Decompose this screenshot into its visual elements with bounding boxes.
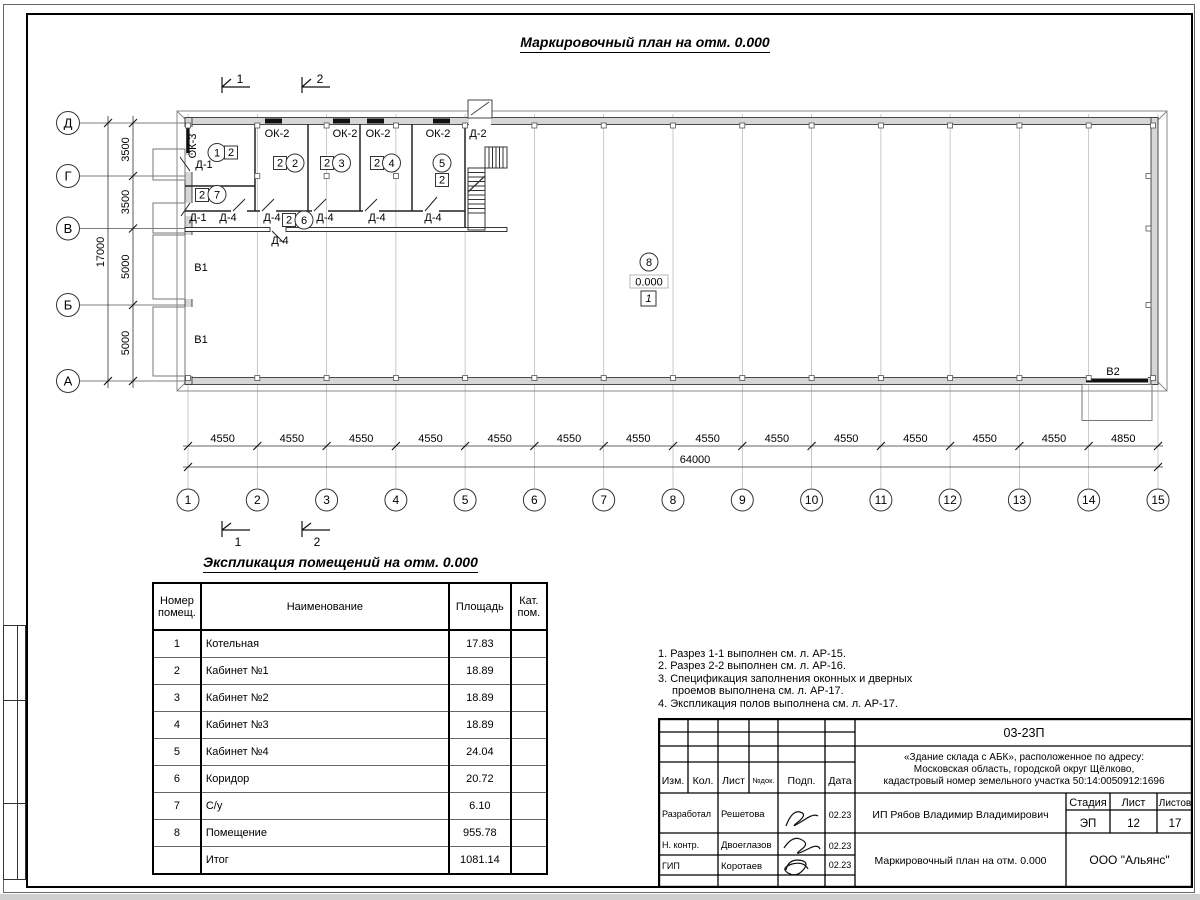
axis-col-5: 5 (462, 493, 469, 507)
room-name: Котельная (201, 630, 449, 658)
note-line: 2. Разрез 2-2 выполнен см. л. АР-16. (658, 660, 1078, 672)
cat-mark-2: 2 (277, 158, 283, 170)
room-category (511, 793, 547, 820)
section-mark-1-top: 1 (237, 72, 244, 86)
room-category (511, 766, 547, 793)
dim-row-4: 5000 (120, 331, 132, 355)
row-axis-bubbles (57, 112, 80, 393)
stamp-sheet-value: 12 (1127, 818, 1140, 830)
floor-type-mark: 1 (645, 293, 651, 305)
stamp-col-podp: Подп. (788, 775, 816, 787)
room-name: Коридор (201, 766, 449, 793)
room-category (511, 820, 547, 847)
axis-col-12: 12 (943, 493, 957, 507)
room-category (511, 658, 547, 685)
stamp-project-line3: кадастровый номер земельного участка 50:… (883, 776, 1164, 787)
room-mark-8: 8 (646, 257, 652, 269)
axis-col-14: 14 (1082, 493, 1096, 507)
section-mark-2-top: 2 (317, 72, 324, 86)
stamp-sheets-value: 17 (1169, 818, 1182, 830)
left-margin-stamp (3, 625, 26, 880)
dim-col-5: 4550 (487, 433, 511, 445)
room-number: 6 (153, 766, 201, 793)
room-mark-7: 7 (214, 190, 220, 202)
porches-and-gates (153, 149, 185, 376)
stamp-client: ИП Рябов Владимир Владимирович (872, 809, 1048, 821)
room-name: Кабинет №1 (201, 658, 449, 685)
note-line: 3. Спецификация заполнения оконных и две… (658, 673, 1078, 685)
dim-row-total: 17000 (95, 237, 107, 268)
axis-col-2: 2 (254, 493, 261, 507)
drawing-sheet: Маркировочный план на отм. 0.000 (0, 0, 1200, 900)
stamp-col-kol: Кол. (693, 775, 714, 787)
room-area: 17.83 (449, 630, 511, 658)
room-name: С/у (201, 793, 449, 820)
stamp-col-list: Лист (722, 775, 745, 787)
col-header-number: Номер помещ. (153, 583, 201, 630)
dim-col-1: 4550 (210, 433, 234, 445)
stamp-role-gip: ГИП (662, 861, 680, 871)
total-label: Итог (201, 847, 449, 875)
porch-1 (153, 149, 185, 180)
label-d4-5: Д-4 (424, 212, 441, 224)
stamp-date-gip: 02.23 (829, 860, 852, 870)
room-mark-4: 4 (388, 158, 394, 170)
label-d2: Д-2 (469, 128, 486, 140)
room-category (511, 630, 547, 658)
screen-edge (0, 894, 1200, 900)
stamp-sheet-label: Лист (1122, 797, 1146, 809)
room-mark-2: 2 (292, 158, 298, 170)
section-marks (222, 77, 330, 537)
cat-mark-7: 2 (199, 190, 205, 202)
room-area: 18.89 (449, 685, 511, 712)
dim-col-3: 4550 (349, 433, 373, 445)
room-mark-1: 1 (214, 148, 220, 160)
dimension-ticks (104, 119, 1162, 471)
dim-row-1: 3500 (120, 137, 132, 161)
notes: 1. Разрез 1-1 выполнен см. л. АР-15. 2. … (658, 648, 1078, 710)
window-ok2-3 (367, 119, 384, 124)
col-header-category: Кат. пом. (511, 583, 547, 630)
label-d4-2: Д-4 (263, 212, 280, 224)
dimension-lines (108, 116, 1163, 467)
room-marker-shapes (196, 144, 669, 307)
room-area: 18.89 (449, 658, 511, 685)
cat-mark-1: 2 (228, 147, 234, 159)
room-number: 2 (153, 658, 201, 685)
dim-col-14: 4850 (1111, 433, 1135, 445)
room-name: Кабинет №4 (201, 739, 449, 766)
vestibule-d2 (468, 100, 492, 118)
stamp-role-ncontrol: Н. контр. (662, 840, 699, 850)
stamp-doc-number: 03-23П (1004, 726, 1045, 740)
stamp-stage-value: ЭП (1080, 818, 1097, 830)
stamp-sheets-label: Листов (1159, 798, 1192, 809)
axis-col-10: 10 (805, 493, 819, 507)
cat-mark-6: 2 (286, 215, 292, 227)
axis-col-6: 6 (531, 493, 538, 507)
label-v1-1: В1 (194, 262, 207, 274)
axis-col-9: 9 (739, 493, 746, 507)
label-d1-top: Д-1 (195, 159, 212, 171)
axis-col-7: 7 (600, 493, 607, 507)
axis-row-b: Б (64, 298, 73, 313)
staircase (468, 147, 507, 230)
dim-col-11: 4550 (903, 433, 927, 445)
dim-col-6: 4550 (557, 433, 581, 445)
col-header-name: Наименование (201, 583, 449, 630)
cat-mark-5: 2 (439, 175, 445, 187)
stamp-role-developer: Разработал (662, 809, 711, 819)
room-name: Кабинет №2 (201, 685, 449, 712)
axis-col-13: 13 (1013, 493, 1027, 507)
stamp-stage-label: Стадия (1069, 797, 1107, 809)
stamp-name-developer: Решетова (721, 809, 765, 820)
stamp-organization: ООО "Альянс" (1089, 853, 1169, 867)
room-area: 955.78 (449, 820, 511, 847)
explication-title: Экспликация помещений на отм. 0.000 (203, 554, 478, 573)
label-d1-corridor: Д-1 (189, 212, 206, 224)
note-line: 1. Разрез 1-1 выполнен см. л. АР-15. (658, 648, 1078, 660)
axis-row-d: Д (64, 116, 73, 131)
axis-row-a: А (64, 374, 73, 389)
label-d4-3: Д-4 (316, 212, 333, 224)
label-ok2-2: ОК-2 (333, 128, 358, 140)
window-ok2-2 (333, 119, 350, 124)
dim-col-4: 4550 (418, 433, 442, 445)
axis-col-3: 3 (323, 493, 330, 507)
room-mark-6: 6 (301, 215, 307, 227)
room-mark-3: 3 (338, 158, 344, 170)
label-v1-2: В1 (194, 334, 207, 346)
axis-row-g: Г (64, 169, 71, 184)
label-ok2-4: ОК-2 (426, 128, 451, 140)
room-category (511, 685, 547, 712)
room-number: 4 (153, 712, 201, 739)
marking-plan-drawing: Д Г В Б А 3500 3500 5000 5000 17000 1 2 … (0, 0, 1200, 560)
section-mark-1-bottom: 1 (235, 535, 242, 549)
label-d4-1: Д-4 (219, 212, 236, 224)
title-block: Изм. Кол. Лист №док. Подп. Дата Разработ… (658, 718, 1193, 888)
room-number: 5 (153, 739, 201, 766)
gate-v1-leaf-2 (153, 307, 185, 376)
dim-col-13: 4550 (1042, 433, 1066, 445)
label-ok3: ОК-3 (187, 134, 199, 159)
room-number: 8 (153, 820, 201, 847)
dim-col-9: 4550 (765, 433, 789, 445)
table-row: 4 Кабинет №3 18.89 (153, 712, 547, 739)
table-row: 6 Коридор 20.72 (153, 766, 547, 793)
gate-v2 (1082, 381, 1152, 421)
axis-col-4: 4 (393, 493, 400, 507)
column-grid-lines (188, 114, 1158, 488)
label-d4-4: Д-4 (368, 212, 385, 224)
dim-col-2: 4550 (280, 433, 304, 445)
signature-scribbles (784, 812, 820, 875)
label-d4-6: Д-4 (271, 235, 288, 247)
total-area: 1081.14 (449, 847, 511, 875)
dim-col-8: 4550 (695, 433, 719, 445)
table-row: 7 С/у 6.10 (153, 793, 547, 820)
section-mark-2-bottom: 2 (314, 535, 321, 549)
axis-col-11: 11 (875, 493, 888, 507)
stamp-col-data: Дата (828, 775, 851, 787)
level-mark: 0.000 (635, 277, 663, 289)
stamp-name-gip: Коротаев (721, 861, 762, 872)
room-number: 3 (153, 685, 201, 712)
dim-col-total: 64000 (680, 454, 711, 466)
cat-mark-3: 2 (324, 158, 330, 170)
stamp-project-line1: «Здание склада с АБК», расположенное по … (904, 752, 1144, 763)
stamp-date-developer: 02.23 (829, 810, 852, 820)
col-header-area: Площадь (449, 583, 511, 630)
room-name: Кабинет №3 (201, 712, 449, 739)
office-south-wall (185, 228, 507, 232)
room-mark-5: 5 (439, 158, 445, 170)
room-category (511, 739, 547, 766)
axis-row-v: В (64, 221, 73, 236)
axis-col-1: 1 (185, 493, 192, 507)
table-row: 1 Котельная 17.83 (153, 630, 547, 658)
stamp-name-ncontrol: Двоеглазов (721, 840, 772, 851)
roof-overhang-outline (177, 111, 1167, 391)
table-row: 5 Кабинет №4 24.04 (153, 739, 547, 766)
dim-col-12: 4550 (972, 433, 996, 445)
explication-table: Номер помещ. Наименование Площадь Кат. п… (152, 582, 548, 875)
label-v2: В2 (1106, 366, 1119, 378)
dim-row-2: 3500 (120, 190, 132, 214)
room-area: 24.04 (449, 739, 511, 766)
window-ok2-1 (265, 119, 282, 124)
stamp-project-line2: Московская область, городской округ Щёлк… (914, 763, 1135, 775)
label-ok2-3: ОК-2 (366, 128, 391, 140)
axis-col-8: 8 (670, 493, 677, 507)
stamp-sheet-name: Маркировочный план на отм. 0.000 (874, 855, 1046, 867)
room-number (153, 847, 201, 875)
table-total-row: Итог 1081.14 (153, 847, 547, 875)
room-category (511, 712, 547, 739)
room-area: 20.72 (449, 766, 511, 793)
room-number: 1 (153, 630, 201, 658)
table-row: 3 Кабинет №2 18.89 (153, 685, 547, 712)
note-line: 4. Экспликация полов выполнена см. л. АР… (658, 698, 1078, 710)
note-line: проемов выполнена см. л. АР-17. (672, 685, 1078, 697)
label-ok2-1: ОК-2 (265, 128, 290, 140)
dim-col-10: 4550 (834, 433, 858, 445)
room-number: 7 (153, 793, 201, 820)
window-ok2-4 (433, 119, 450, 124)
dim-row-3: 5000 (120, 255, 132, 279)
room-name: Помещение (201, 820, 449, 847)
stamp-col-dok: №док. (753, 776, 775, 785)
room-area: 6.10 (449, 793, 511, 820)
cat-mark-4: 2 (374, 158, 380, 170)
stamp-date-ncontrol: 02.23 (829, 841, 852, 851)
dim-col-7: 4550 (626, 433, 650, 445)
room-area: 18.89 (449, 712, 511, 739)
axis-col-15: 15 (1151, 493, 1165, 507)
stamp-col-izm: Изм. (662, 775, 685, 787)
table-row: 8 Помещение 955.78 (153, 820, 547, 847)
gate-v1-leaf-1 (153, 235, 185, 299)
table-row: 2 Кабинет №1 18.89 (153, 658, 547, 685)
room-category (511, 847, 547, 875)
